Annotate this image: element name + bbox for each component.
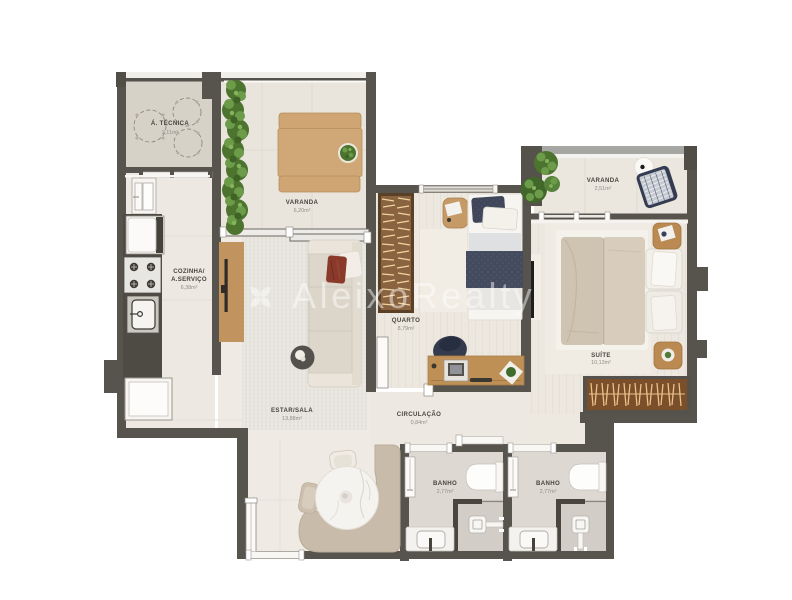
svg-text:Á. TÉCNICA: Á. TÉCNICA bbox=[151, 119, 190, 127]
svg-text:SUÍTE: SUÍTE bbox=[591, 351, 611, 359]
svg-text:CIRCULAÇÃO: CIRCULAÇÃO bbox=[397, 411, 441, 418]
svg-text:AleixoRealty: AleixoRealty bbox=[292, 275, 535, 316]
svg-text:6,20m²: 6,20m² bbox=[294, 208, 311, 214]
svg-text:BANHO: BANHO bbox=[433, 480, 457, 487]
svg-text:10,13m²: 10,13m² bbox=[591, 360, 611, 366]
svg-text:VARANDA: VARANDA bbox=[286, 199, 319, 206]
svg-text:6,38m²: 6,38m² bbox=[181, 285, 198, 291]
svg-text:QUARTO: QUARTO bbox=[392, 317, 420, 324]
svg-text:2,11m²: 2,11m² bbox=[162, 130, 179, 136]
svg-text:ESTAR/SALA: ESTAR/SALA bbox=[271, 407, 313, 414]
svg-text:0,84m²: 0,84m² bbox=[411, 420, 428, 426]
svg-text:13,88m²: 13,88m² bbox=[282, 416, 302, 422]
svg-text:COZINHA/: COZINHA/ bbox=[173, 268, 205, 275]
svg-text:2,51m²: 2,51m² bbox=[595, 186, 612, 192]
svg-text:2,77m²: 2,77m² bbox=[437, 489, 454, 495]
svg-text:8,79m²: 8,79m² bbox=[398, 326, 415, 332]
svg-text:A.SERVIÇO: A.SERVIÇO bbox=[171, 276, 207, 283]
svg-text:VARANDA: VARANDA bbox=[587, 177, 620, 184]
svg-text:2,77m²: 2,77m² bbox=[540, 489, 557, 495]
svg-text:BANHO: BANHO bbox=[536, 480, 560, 487]
